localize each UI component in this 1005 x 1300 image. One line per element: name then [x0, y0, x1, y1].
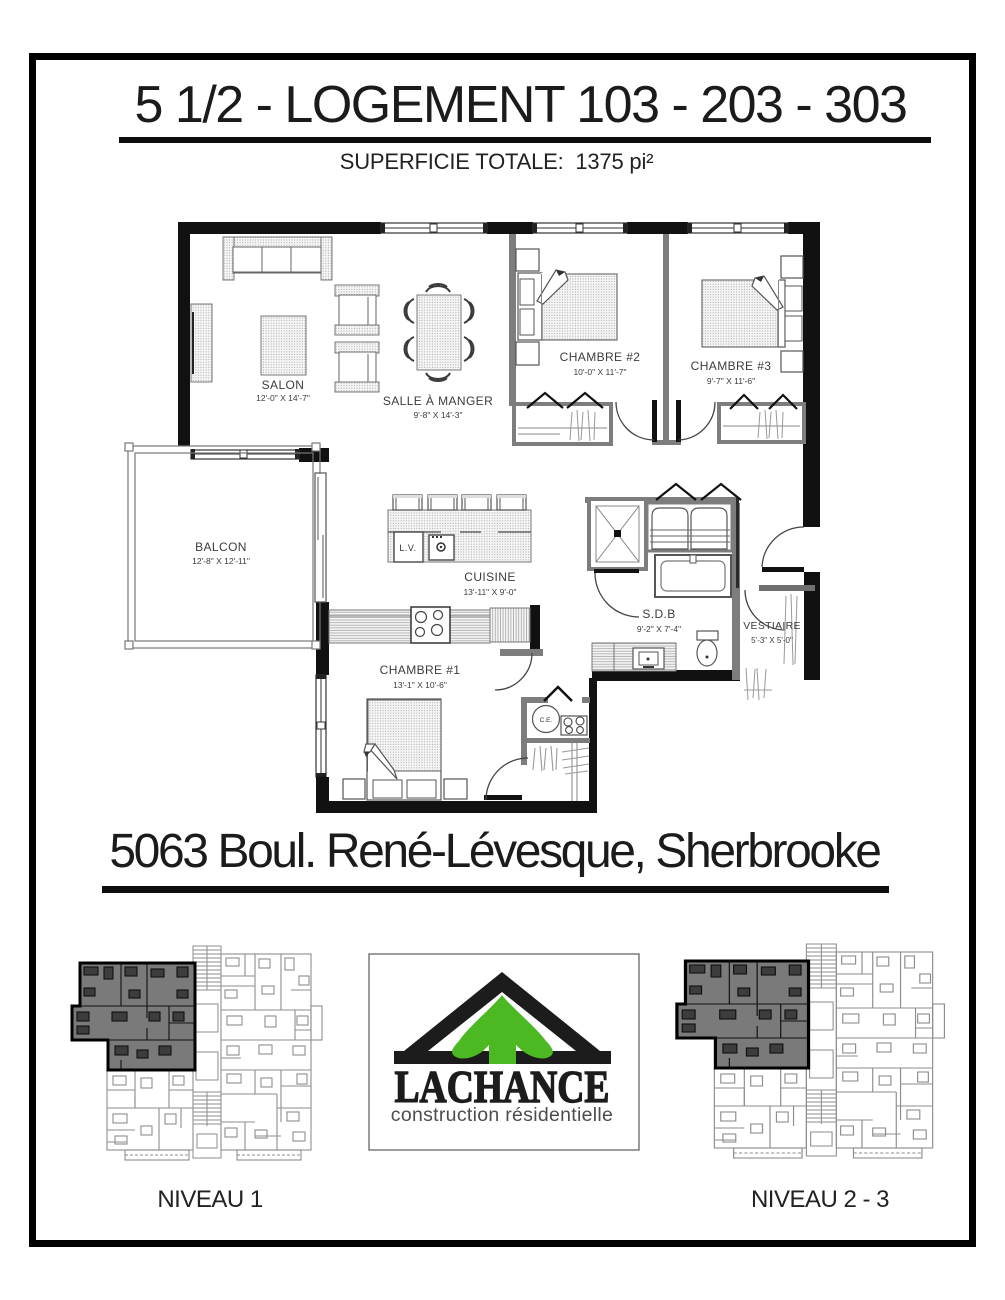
- svg-text:CHAMBRE #2: CHAMBRE #2: [560, 350, 641, 364]
- svg-text:SALLE À MANGER: SALLE À MANGER: [383, 393, 493, 408]
- svg-text:CUISINE: CUISINE: [464, 570, 515, 584]
- svg-text:construction résidentielle: construction résidentielle: [391, 1104, 613, 1126]
- svg-text:CHAMBRE #1: CHAMBRE #1: [380, 663, 461, 677]
- svg-text:12'-0" X 14'-7": 12'-0" X 14'-7": [256, 393, 310, 403]
- svg-text:BALCON: BALCON: [195, 540, 247, 554]
- svg-text:VESTIAIRE: VESTIAIRE: [743, 620, 801, 632]
- svg-text:12'-8" X 12'-11": 12'-8" X 12'-11": [192, 556, 250, 566]
- svg-text:10'-0" X 11'-7": 10'-0" X 11'-7": [573, 367, 626, 377]
- svg-text:9'-7" X 11'-6": 9'-7" X 11'-6": [707, 376, 755, 386]
- svg-text:5'-3" X 5'-0": 5'-3" X 5'-0": [751, 636, 793, 645]
- svg-text:13'-11" X 9'-0": 13'-11" X 9'-0": [463, 587, 516, 597]
- svg-text:SALON: SALON: [262, 378, 305, 392]
- svg-text:L.V.: L.V.: [399, 543, 416, 553]
- svg-text:9'-8" X 14'-3": 9'-8" X 14'-3": [414, 410, 463, 420]
- svg-text:13'-1" X 10'-6": 13'-1" X 10'-6": [393, 680, 447, 690]
- svg-text:S.D.B: S.D.B: [642, 607, 675, 621]
- svg-text:C.E.: C.E.: [540, 717, 553, 724]
- svg-text:CHAMBRE #3: CHAMBRE #3: [691, 359, 772, 373]
- svg-text:9'-2" X 7'-4": 9'-2" X 7'-4": [637, 624, 681, 634]
